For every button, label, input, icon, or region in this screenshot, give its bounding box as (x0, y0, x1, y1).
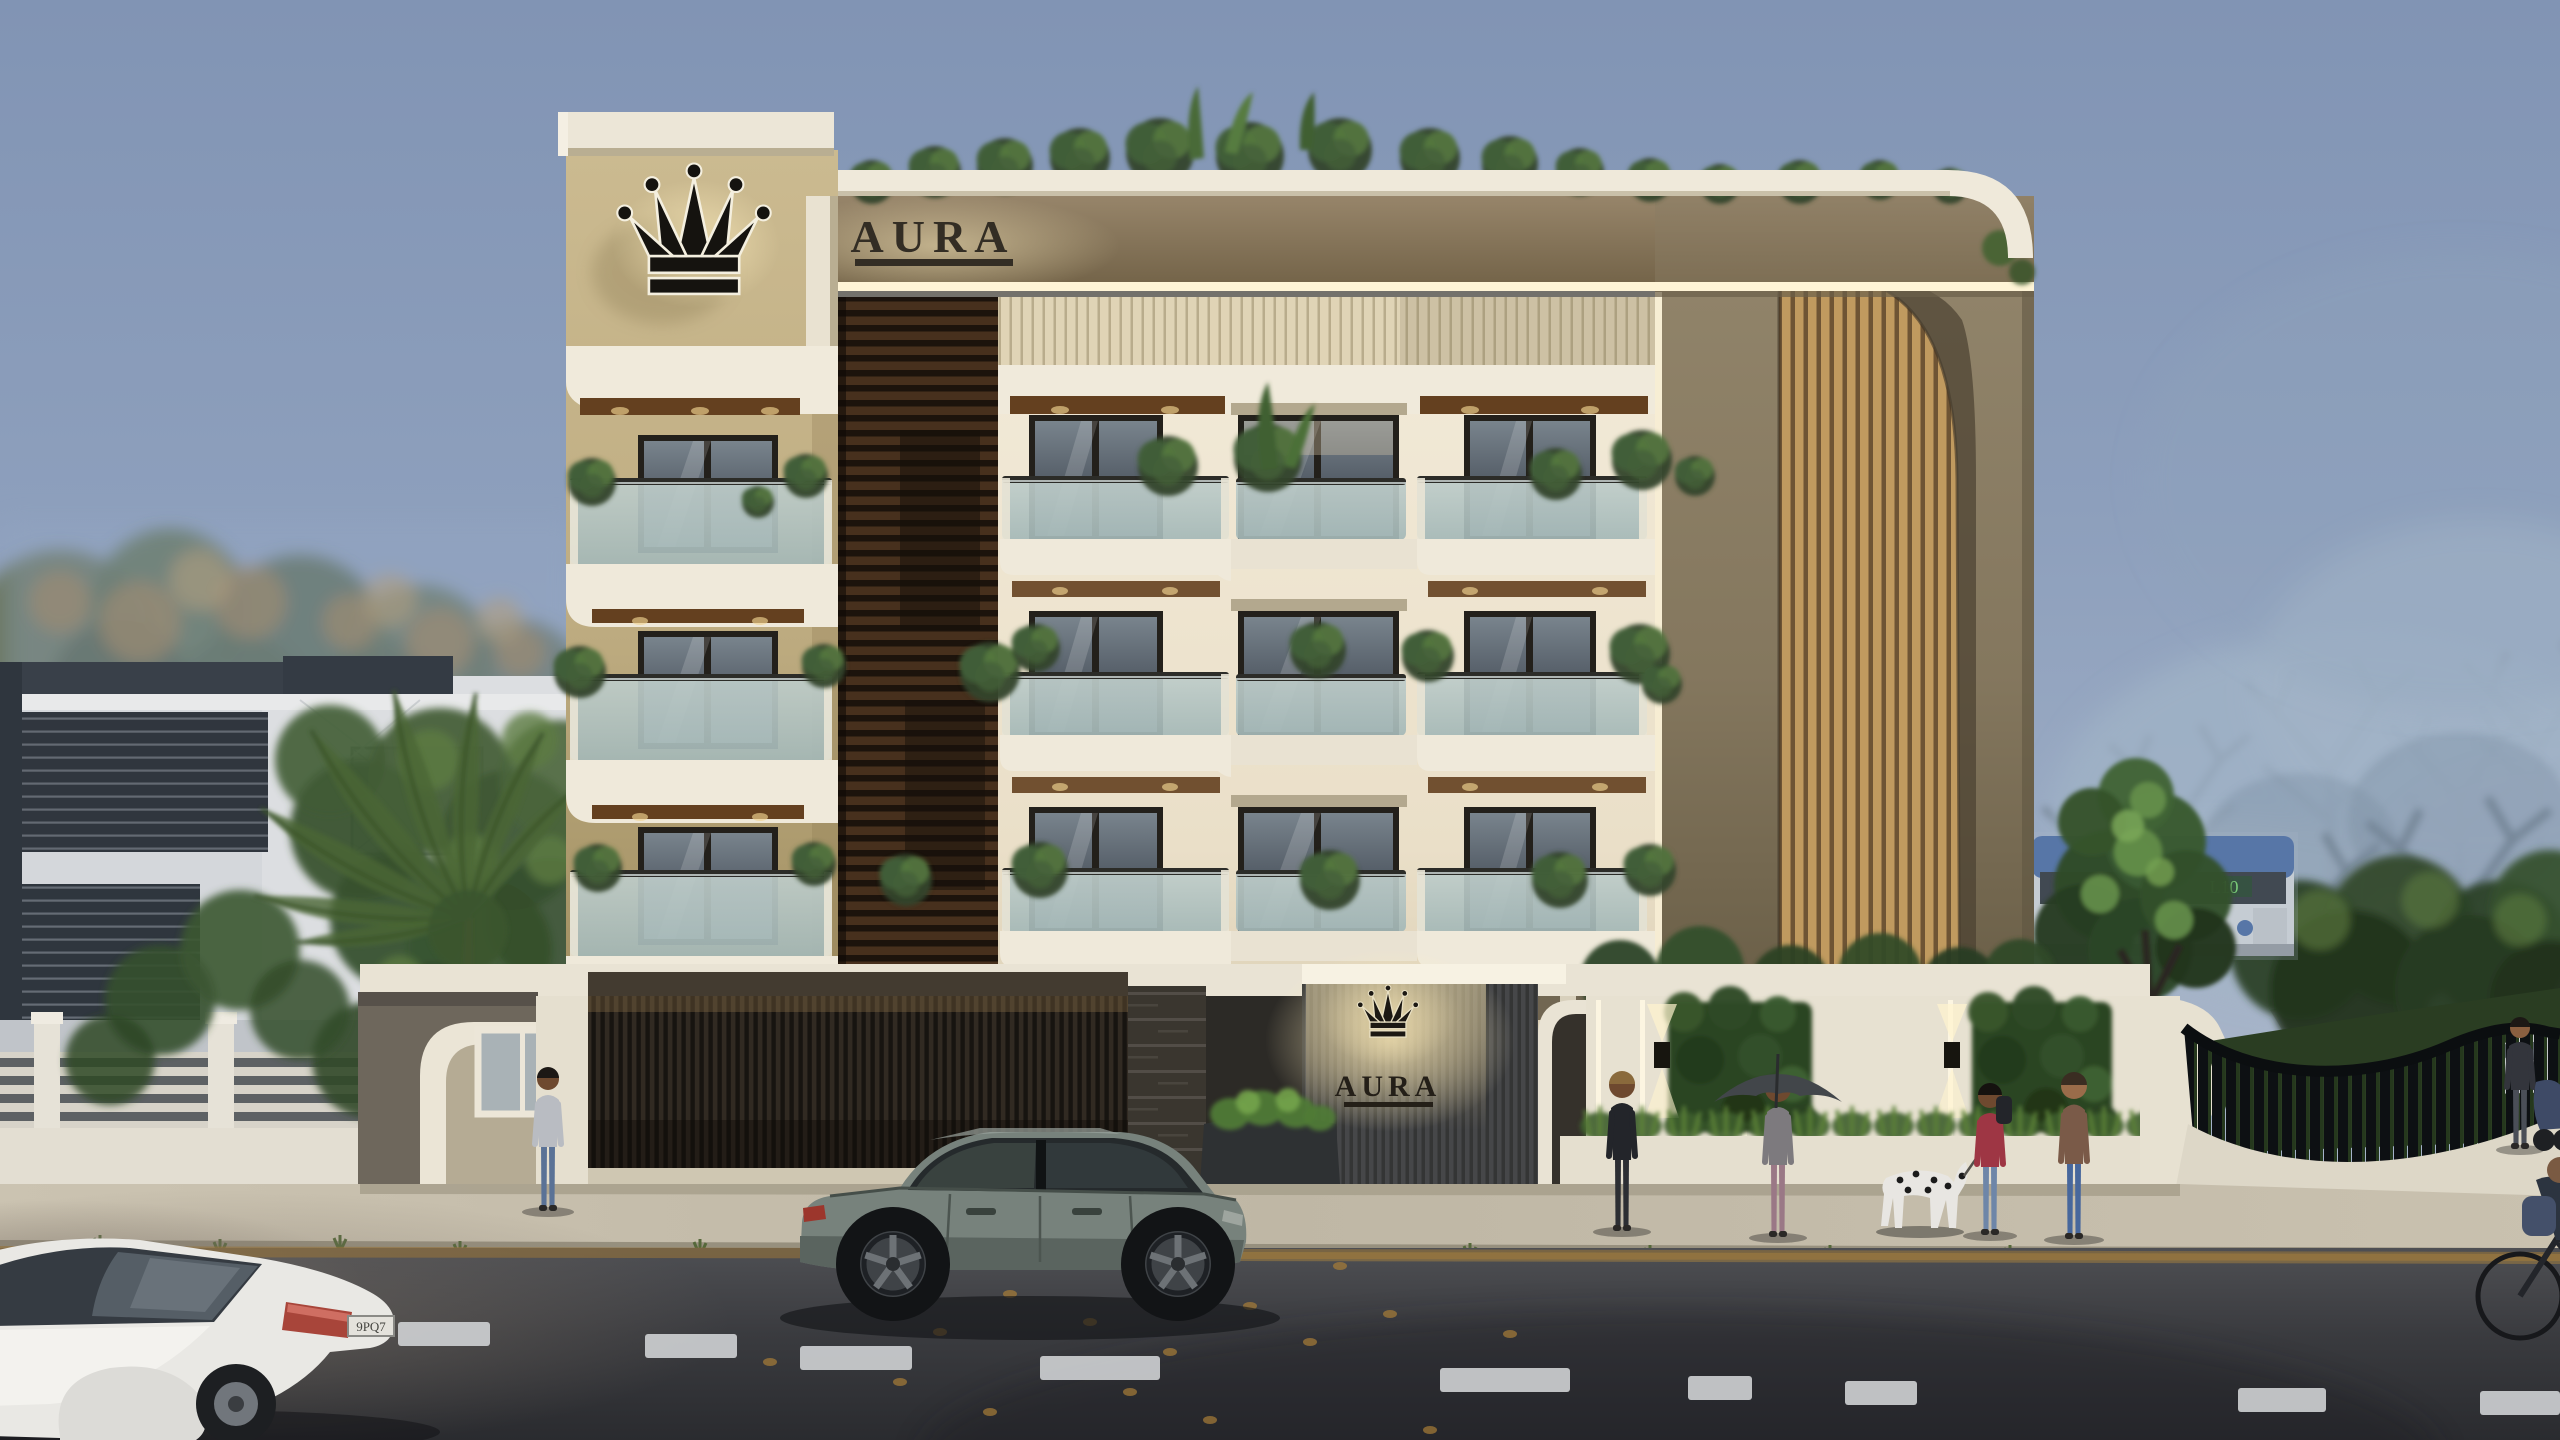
svg-text:AURA: AURA (1335, 1070, 1442, 1103)
svg-text:AURA: AURA (851, 211, 1016, 262)
svg-text:9PQ7: 9PQ7 (356, 1319, 386, 1334)
